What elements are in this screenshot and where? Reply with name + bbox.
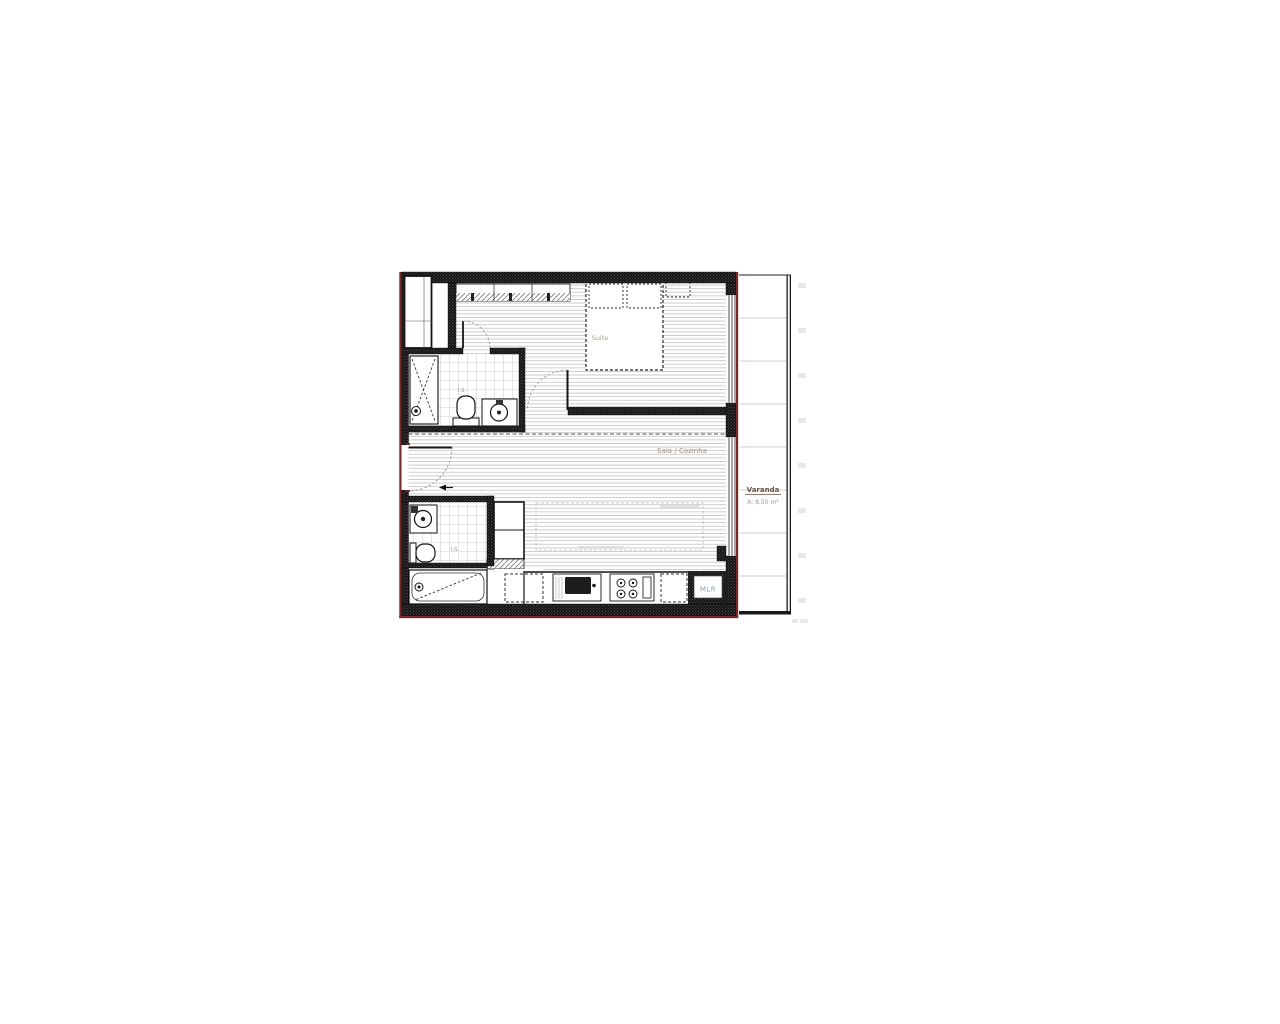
balcony: Varanda A: 8,50 m² (739, 275, 791, 615)
balcony-label: Varanda (747, 486, 780, 494)
bathroom-top-label: I.S. (458, 388, 467, 394)
kitchen: MLR (494, 569, 726, 604)
window-suite (728, 295, 736, 403)
wall-suite-living (568, 407, 726, 415)
window-living (728, 437, 736, 556)
wall-top (402, 272, 737, 283)
page-canvas: I.S. (0, 0, 1280, 1024)
washer-niche: MLR (688, 571, 726, 604)
living-kitchen-label: Sala / Cozinha (657, 447, 707, 455)
shower (410, 356, 438, 424)
bathtub (409, 570, 487, 604)
entry-closet (405, 276, 432, 348)
wall-left-lower (402, 490, 409, 604)
washbasin (410, 505, 437, 533)
suite-label: Suite (592, 334, 609, 342)
bathroom-bottom: I.S. (403, 498, 494, 604)
kitchen-sink (553, 574, 601, 601)
wall-bottom (402, 604, 737, 616)
toilet (410, 543, 435, 563)
bathroom-top: I.S. (409, 354, 520, 426)
floor-plan: I.S. (395, 263, 815, 623)
fridge-dashed (661, 574, 687, 602)
faint-annotation (578, 546, 624, 549)
bathroom-bottom-label: I.S. (451, 547, 460, 553)
balcony-area-label: A: 8,50 m² (747, 499, 779, 506)
faint-annotation (660, 505, 700, 508)
suite-wardrobe (456, 284, 570, 301)
washer-label: MLR (700, 586, 716, 594)
washbasin (482, 399, 517, 426)
dimension-smudges (792, 283, 808, 623)
stove (610, 574, 654, 601)
